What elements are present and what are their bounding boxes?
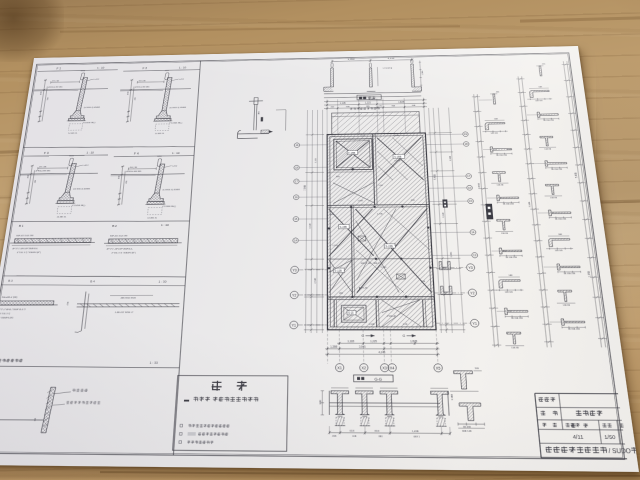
svg-text:(14 M16 4) 4D6B5: (14 M16 4) 4D6B5 [169,107,186,109]
svg-text:45B: 45B [127,91,130,95]
svg-text:X2: X2 [362,365,367,370]
svg-text:5B 35B 24B: 5B 35B 24B [506,257,517,259]
svg-text:t-412: t-412 [83,164,88,167]
svg-text:M16: M16 [69,155,74,157]
svg-text:14 4B5 3L: 14 4B5 3L [68,133,78,135]
svg-text:4B5 M16 W1B: 4B5 M16 W1B [120,297,136,299]
svg-text:4*5BL4F: 4*5BL4F [387,316,398,319]
svg-text:Y3: Y3 [468,265,473,270]
svg-text:96B: 96B [391,105,396,107]
svg-text:F 3: F 3 [44,151,50,155]
svg-text:4B5: 4B5 [339,293,343,295]
svg-text:5B 35B 24B: 5B 35B 24B [564,273,576,275]
svg-text:1,5BB: 1,5BB [422,70,425,75]
svg-text:15B 8B: 15B 8B [497,184,504,186]
svg-text:1,94B: 1,94B [442,212,445,218]
svg-text:14 4B5 3L: 14 4B5 3L [155,133,165,135]
svg-text:4FR3L& EM 3B5: 4FR3L& EM 3B5 [35,170,50,172]
svg-text:27B: 27B [378,105,383,107]
svg-text:15B 8B: 15B 8B [544,148,551,150]
svg-text:B4F-415 5&4 19B: B4F-415 5&4 19B [110,235,128,237]
svg-text:3,945: 3,945 [359,346,366,349]
svg-text:X1: X1 [337,365,342,370]
svg-text:2,2B5: 2,2B5 [450,252,453,258]
svg-text:15B: 15B [134,97,137,101]
svg-text:5BB 14B: 5BB 14B [462,431,473,434]
svg-text:81B: 81B [375,430,381,433]
svg-text:45B: 45B [331,106,336,108]
svg-text:14B 345: 14B 345 [555,250,563,252]
svg-text:G-G: G-G [374,376,383,381]
svg-text:t-412: t-412 [179,78,184,81]
svg-text:5B 35B 24B: 5B 35B 24B [543,120,554,122]
svg-text:6B9 1: 6B9 1 [413,436,419,439]
svg-text:4B5: 4B5 [496,91,500,93]
svg-text:47B: 47B [67,301,70,306]
svg-text:Y3: Y3 [292,268,297,273]
svg-text:/ SUDO: / SUDO [608,447,632,454]
svg-text:1,19(4)B ■: 1,19(4)B ■ [382,67,392,69]
svg-text:3,64B: 3,64B [529,201,532,207]
svg-text:M16: M16 [81,70,85,72]
svg-text:1,225: 1,225 [360,136,365,138]
svg-text:14B 345: 14B 345 [490,133,498,135]
svg-text:8B1: 8B1 [379,436,383,439]
svg-text:B 4: B 4 [90,280,96,284]
svg-text:S-1BB: S-1BB [394,156,402,158]
svg-text:8B5: 8B5 [336,176,340,178]
svg-text:15B 8B: 15B 8B [550,197,557,199]
svg-text:J-5B 412 W1B L7: J-5B 412 W1B L7 [115,312,134,314]
svg-text:F 2: F 2 [142,66,147,70]
svg-text:1 : 30: 1 : 30 [158,279,167,284]
svg-text:4*T/4L 3 7) *45B4F4 (B*): 4*T/4L 3 7) *45B4F4 (B*) [17,252,42,254]
svg-text:4F*2*-L*\4F4L-*2B4F*4L4-*2: 4F*2*-L*\4F4L-*2B4F*4L4-*2 [0,309,26,311]
svg-text:5B 35B 24B: 5B 35B 24B [511,318,523,321]
svg-text:B4F-415 5&4 19B: B4F-415 5&4 19B [16,235,34,237]
svg-text:1,2BB: 1,2BB [330,346,338,349]
svg-text:4,110: 4,110 [388,57,396,60]
svg-text:4B5: 4B5 [258,111,260,114]
svg-text:15B 8B: 15B 8B [563,304,570,307]
svg-text:G: G [402,333,405,338]
svg-text:X3: X3 [382,365,387,370]
svg-text:5B 35B 24B: 5B 35B 24B [496,155,507,157]
svg-text:2,53B: 2,53B [315,277,318,284]
svg-text:5B 45B: 5B 45B [463,426,472,429]
svg-text:84B: 84B [412,105,417,107]
svg-text:2,2B5: 2,2B5 [381,267,387,269]
svg-text:14 4B5 3L: 14 4B5 3L [147,217,157,219]
svg-text:3,94B: 3,94B [309,222,312,228]
svg-text:94B: 94B [346,106,351,108]
svg-text:B 1: B 1 [19,223,25,227]
svg-text:5B8: 5B8 [494,118,498,120]
svg-text:G: G [361,333,364,338]
svg-text:4FR3L& EM 3B5: 4FR3L& EM 3B5 [126,171,141,173]
svg-text:455 | 3B: 455 | 3B [52,80,60,82]
svg-text:J5&mB5-4 (5B): J5&mB5-4 (5B) [1,297,18,299]
svg-text:14B 345: 14B 345 [505,292,513,294]
svg-text:1,1BB: 1,1BB [449,155,452,161]
svg-text:1,82B: 1,82B [398,102,405,104]
svg-text:4,245: 4,245 [369,99,376,101]
svg-text:1,225: 1,225 [365,102,371,104]
svg-text:61B: 61B [352,435,357,438]
svg-text:1,225: 1,225 [370,341,378,344]
svg-text:1,82B: 1,82B [410,341,418,344]
svg-text:(14 M16 4) 4D6B5: (14 M16 4) 4D6B5 [83,107,100,109]
svg-text:t-412: t-412 [94,78,99,81]
svg-text:15B: 15B [34,179,37,183]
svg-text:1 : 10: 1 : 10 [172,151,180,155]
svg-text:61B: 61B [350,430,356,433]
svg-text:4F*2*L*-/4FL\4F*2B4F4L4-: 4F*2*L*-/4FL\4F*2B4F4L4- [12,248,39,250]
svg-text:1,43B: 1,43B [412,430,420,433]
svg-text:7,54B: 7,54B [305,184,308,190]
svg-text:1 : 10: 1 : 10 [179,66,187,70]
svg-text:5B 35B 24B: 5B 35B 24B [503,204,514,206]
svg-text:4B5*2 4FL-*4BL5: 4B5*2 4FL-*4BL5 [361,263,380,265]
svg-text:45B: 45B [332,435,337,438]
svg-text:S-15B: S-15B [340,227,348,229]
svg-text:Y2: Y2 [292,293,297,298]
svg-text:1,3B5: 1,3B5 [357,200,363,202]
svg-text:4F*2*L*-/4FL\4F*2B4F4L4-: 4F*2*L*-/4FL\4F*2B4F4L4- [106,248,133,250]
svg-text:15B 8B: 15B 8B [511,347,518,350]
svg-text:(14 M16 4) 4D6B5: (14 M16 4) 4D6B5 [73,188,90,190]
svg-text:15B: 15B [126,180,129,184]
svg-text:1 : 10: 1 : 10 [97,66,105,70]
svg-text:9BB: 9BB [320,399,323,405]
svg-text:S-15B: S-15B [385,246,393,248]
svg-text:15B: 15B [474,368,480,371]
svg-text:5B: 5B [34,417,37,421]
svg-text:4*2245B 3B(-): 4*2245B 3B(-) [169,122,183,124]
svg-text:*45B4F4 (B*): *45B4F4 (B*) [0,317,14,319]
svg-text:M16: M16 [157,156,161,158]
svg-text:4*2245B 3B(-): 4*2245B 3B(-) [162,206,176,208]
svg-text:5,B5B: 5,B5B [478,182,481,188]
svg-text:B 3: B 3 [8,279,14,283]
svg-text:1,350: 1,350 [348,58,356,61]
svg-text:S-15: S-15 [348,313,353,315]
svg-text:X4: X4 [390,365,395,370]
svg-text:8B5: 8B5 [366,106,370,108]
svg-text:4FR3L& EM 3B5: 4FR3L& EM 3B5 [135,86,150,88]
svg-text:F-1BB: F-1BB [348,153,356,155]
svg-text:5B 35B 24B: 5B 35B 24B [568,329,580,332]
svg-text:455 | 3B: 455 | 3B [129,167,138,169]
svg-text:5B8: 5B8 [509,275,513,277]
svg-text:1/50: 1/50 [604,433,617,440]
svg-text:1,11B: 1,11B [347,341,355,344]
svg-text:F 4: F 4 [134,152,140,156]
svg-text:t=15B: t=15B [394,159,401,162]
svg-text:-4 T/4L 3 7): -4 T/4L 3 7) [0,313,11,315]
svg-text:1,3BB: 1,3BB [451,393,454,401]
svg-text:45B: 45B [118,175,121,179]
svg-text:t-412: t-412 [172,164,177,167]
svg-text:1 : 10: 1 : 10 [86,151,95,155]
svg-text:5B 35B 24B: 5B 35B 24B [551,169,562,171]
svg-text:455 | 3B: 455 | 3B [138,80,146,82]
svg-text:5B 35B 24B: 5B 35B 24B [555,219,566,221]
svg-text:1 : 33: 1 : 33 [149,360,158,365]
svg-text:Y2: Y2 [470,291,475,296]
svg-text:4*T/4L 3 7) *45B4F4 (B*): 4*T/4L 3 7) *45B4F4 (B*) [111,252,136,254]
svg-text:B 2: B 2 [112,223,118,227]
svg-text:5B8: 5B8 [558,234,562,236]
svg-text:Y1: Y1 [472,321,478,326]
svg-text:1,11B: 1,11B [340,103,347,105]
svg-text:4*2245B 3B(-): 4*2245B 3B(-) [72,205,86,207]
svg-text:4/11: 4/11 [572,433,583,440]
svg-text:45B: 45B [40,91,43,95]
svg-text:5B8: 5B8 [539,86,543,88]
svg-text:X5: X5 [436,365,442,370]
svg-text:4FR3L& EM 3B5: 4FR3L& EM 3B5 [48,86,63,88]
svg-text:45B: 45B [27,174,30,178]
svg-text:4B5: 4B5 [332,136,336,138]
svg-text:4,245: 4,245 [378,352,386,355]
svg-text:1,225: 1,225 [315,158,317,163]
svg-text:4*2245B 3B(-): 4*2245B 3B(-) [82,122,96,124]
svg-text:15B 8B: 15B 8B [501,233,508,235]
svg-text:F 1: F 1 [56,67,61,71]
svg-text:S-12B: S-12B [334,270,342,272]
svg-text:4B5: 4B5 [542,64,546,66]
svg-text:■4FL4&: ■4FL4& [359,287,369,289]
svg-text:14 4B5 3L: 14 4B5 3L [56,216,66,218]
svg-text:15B: 15B [47,97,50,101]
svg-text:M16: M16 [165,70,169,72]
svg-text:14B 345: 14B 345 [535,100,543,102]
svg-text:455 | 3B: 455 | 3B [39,166,48,168]
svg-text:(14 M16 4) 4D6B5: (14 M16 4) 4D6B5 [162,189,180,191]
svg-text:1 : 10: 1 : 10 [161,223,170,228]
svg-text:Y1: Y1 [292,323,297,328]
